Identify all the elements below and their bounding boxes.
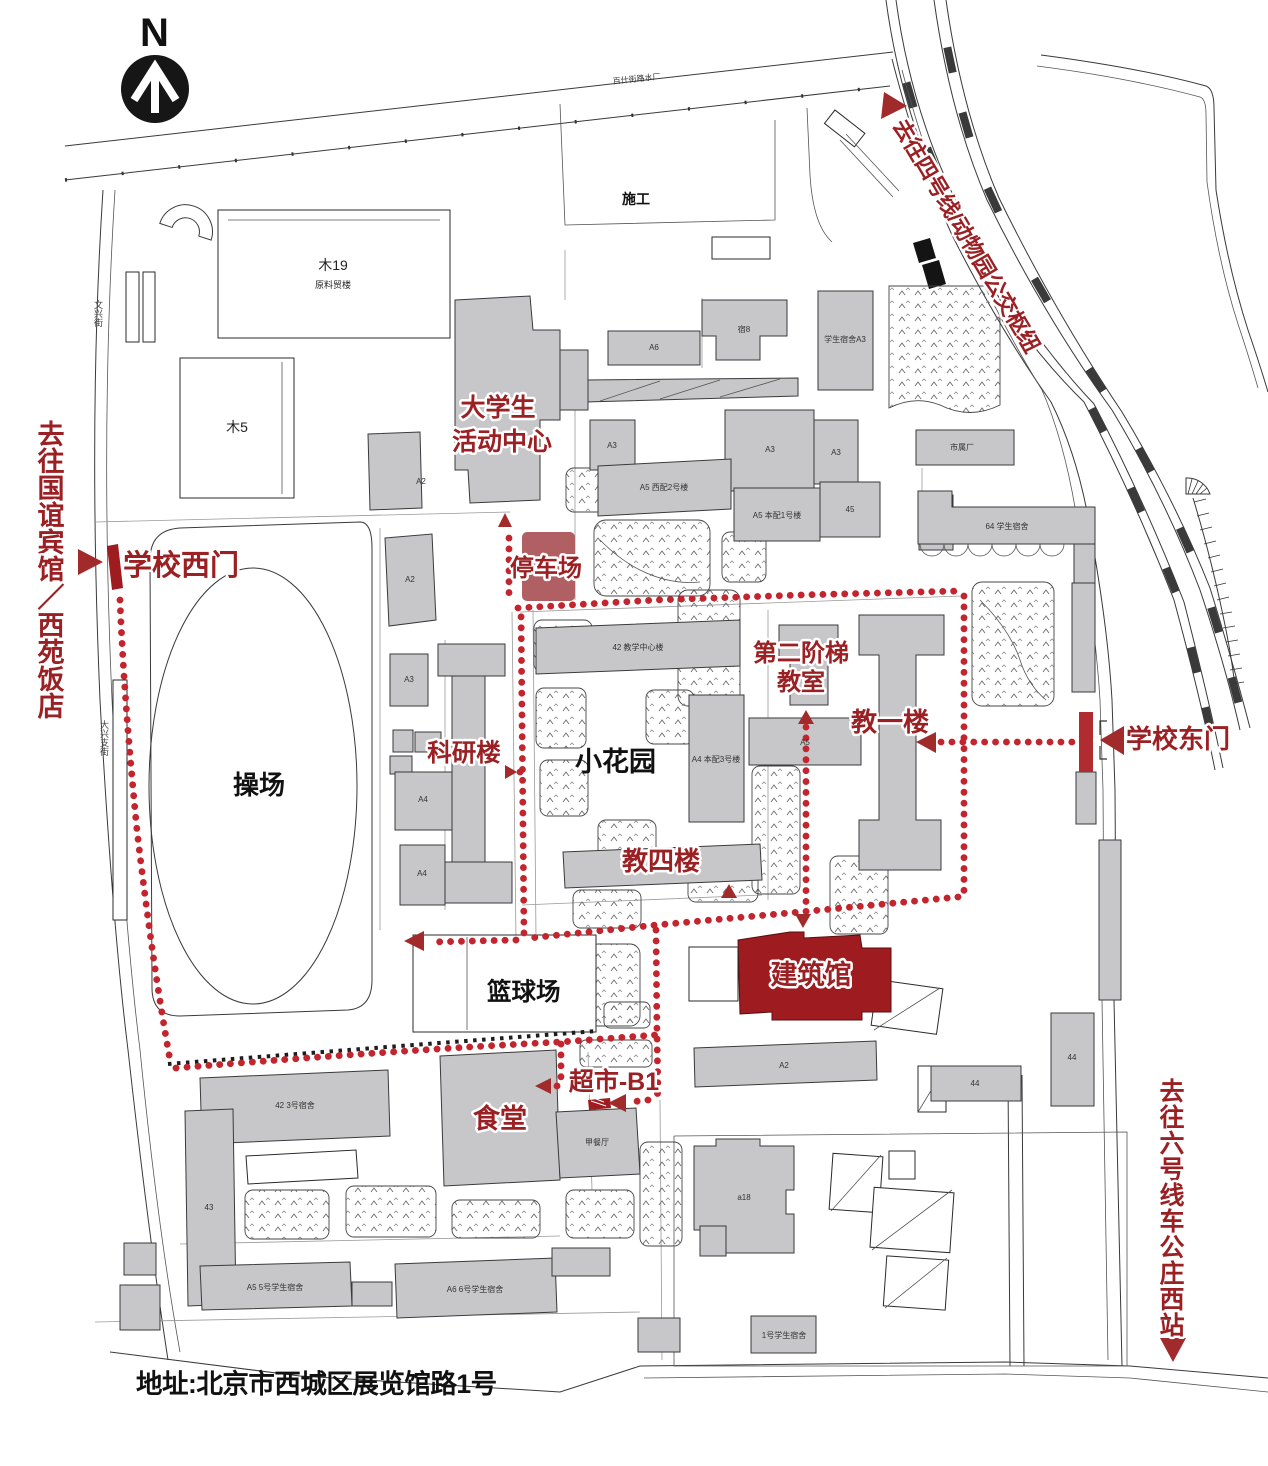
svg-text:西: 西 [1159,1286,1184,1314]
svg-text:教一楼: 教一楼 [851,707,929,737]
svg-text:地址:北京市西城区展览馆路1号: 地址:北京市西城区展览馆路1号 [136,1369,497,1399]
svg-text:学生宿舍A3: 学生宿舍A3 [824,334,866,344]
svg-text:谊: 谊 [38,500,65,531]
svg-text:A2: A2 [416,477,426,486]
svg-text:木5: 木5 [226,419,248,435]
svg-text:超市-B1: 超市-B1 [569,1067,659,1096]
svg-text:西: 西 [38,611,65,641]
svg-text:馆: 馆 [38,554,65,585]
svg-text:六: 六 [1159,1130,1184,1158]
svg-text:A4 本配3号楼: A4 本配3号楼 [692,754,740,764]
svg-text:A3: A3 [607,441,617,450]
svg-text:国: 国 [38,474,65,504]
svg-text:号: 号 [1159,1156,1184,1184]
svg-text:1号学生宿舍: 1号学生宿舍 [762,1330,806,1340]
svg-text:A4: A4 [417,869,427,878]
svg-text:A5 本配1号楼: A5 本配1号楼 [753,510,801,520]
svg-text:小花园: 小花园 [575,747,656,777]
svg-text:庄: 庄 [1159,1259,1184,1288]
svg-text:A2: A2 [779,1061,789,1070]
svg-text:公: 公 [1159,1234,1184,1262]
svg-text:A3: A3 [404,675,414,684]
svg-text:教四楼: 教四楼 [622,846,700,876]
svg-text:木19: 木19 [318,257,348,273]
svg-text:A5 西配2号楼: A5 西配2号楼 [640,482,688,492]
svg-text:A5 5号学生宿舍: A5 5号学生宿舍 [247,1282,303,1292]
svg-text:45: 45 [846,505,855,514]
svg-text:食堂: 食堂 [473,1103,527,1134]
svg-text:学校西门: 学校西门 [123,548,239,582]
svg-text:原料贸楼: 原料贸楼 [315,279,351,290]
svg-text:A3: A3 [765,445,775,454]
svg-text:44: 44 [1068,1053,1077,1062]
svg-text:／: ／ [38,583,65,613]
svg-text:去: 去 [38,420,65,450]
svg-text:42 教学中心楼: 42 教学中心楼 [612,642,663,652]
svg-text:活动中心: 活动中心 [452,428,552,456]
svg-text:操场: 操场 [233,770,285,800]
svg-text:站: 站 [1159,1312,1184,1340]
svg-text:篮球场: 篮球场 [486,977,561,1006]
svg-text:N: N [140,11,169,55]
svg-text:线: 线 [1159,1181,1184,1210]
svg-text:A6 6号学生宿舍: A6 6号学生宿舍 [447,1284,503,1294]
svg-text:A5: A5 [800,738,810,747]
svg-text:饭: 饭 [38,665,65,695]
svg-text:宿8: 宿8 [738,324,751,334]
svg-text:学校东门: 学校东门 [1126,724,1230,754]
svg-text:A4: A4 [418,795,428,804]
svg-text:大兴支街: 大兴支街 [99,719,109,757]
svg-text:A3: A3 [831,448,841,457]
svg-text:教室: 教室 [777,668,825,696]
svg-text:停车场: 停车场 [510,554,582,582]
svg-text:文兴街: 文兴街 [93,299,103,328]
svg-text:苑: 苑 [38,638,65,668]
svg-text:大学生: 大学生 [460,393,535,422]
svg-text:车: 车 [1159,1207,1184,1236]
svg-text:宾: 宾 [38,527,65,558]
svg-text:市属厂: 市属厂 [950,442,974,452]
svg-text:64 学生宿舍: 64 学生宿舍 [985,521,1028,531]
svg-text:a18: a18 [737,1193,751,1202]
svg-text:甲餐厅: 甲餐厅 [585,1138,609,1147]
svg-text:店: 店 [38,692,65,722]
svg-text:建筑馆: 建筑馆 [771,959,852,990]
svg-text:A6: A6 [649,343,659,352]
svg-text:42 3号宿舍: 42 3号宿舍 [275,1100,315,1110]
svg-text:去: 去 [1159,1078,1184,1106]
svg-text:A2: A2 [405,575,415,584]
svg-text:44: 44 [971,1079,980,1088]
svg-text:施工: 施工 [622,191,650,207]
svg-text:往: 往 [1159,1103,1184,1132]
svg-text:科研楼: 科研楼 [427,739,501,767]
svg-text:往: 往 [38,446,65,477]
svg-text:第二阶梯: 第二阶梯 [753,639,849,667]
svg-text:43: 43 [205,1203,214,1212]
